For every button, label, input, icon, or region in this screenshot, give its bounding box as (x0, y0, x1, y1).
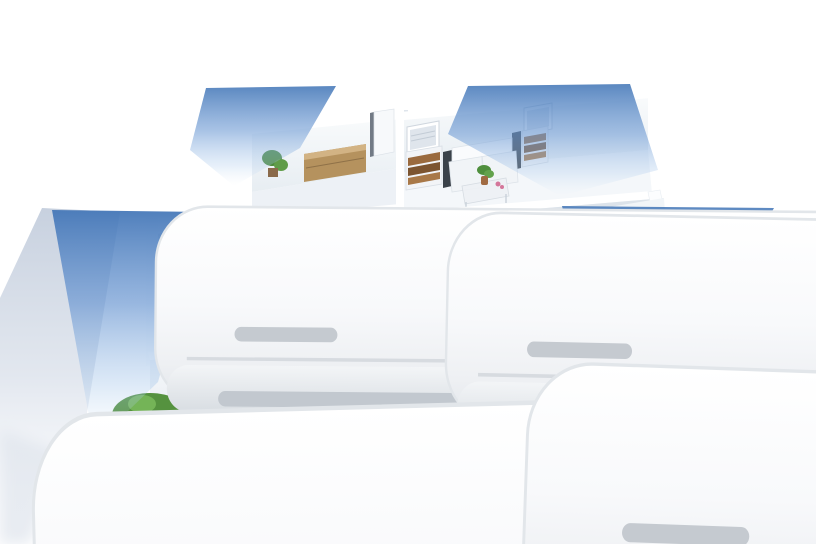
bookshelf-left (406, 146, 442, 190)
back-room-door-jamb (370, 112, 374, 157)
illustration-canvas: Cutaway 3D home with four wall-mounted m… (0, 0, 816, 544)
back-room-door (374, 109, 394, 156)
scene: Cutaway 3D home with four wall-mounted m… (0, 0, 816, 544)
ac-unit-right (521, 362, 816, 544)
